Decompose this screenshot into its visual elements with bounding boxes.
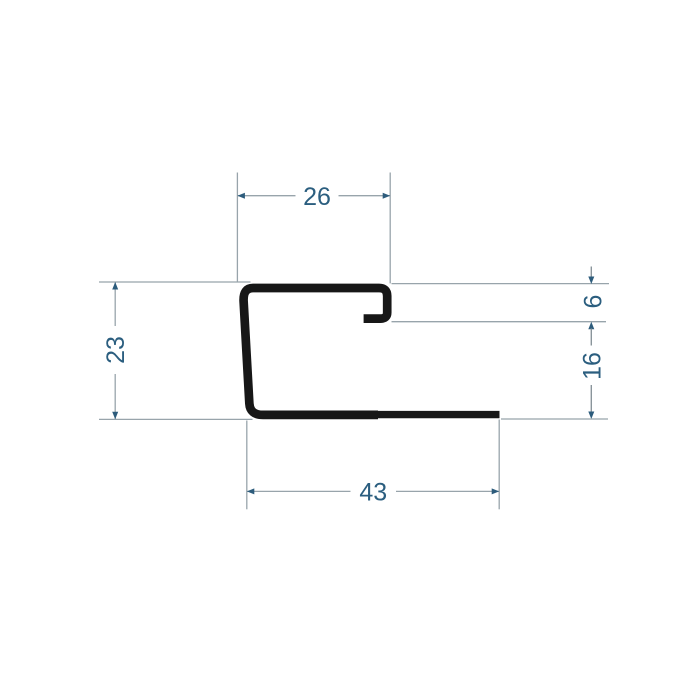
svg-text:16: 16: [578, 352, 606, 380]
svg-text:43: 43: [359, 479, 387, 507]
svg-text:23: 23: [102, 336, 130, 364]
svg-text:6: 6: [579, 295, 607, 309]
svg-text:26: 26: [303, 183, 331, 211]
